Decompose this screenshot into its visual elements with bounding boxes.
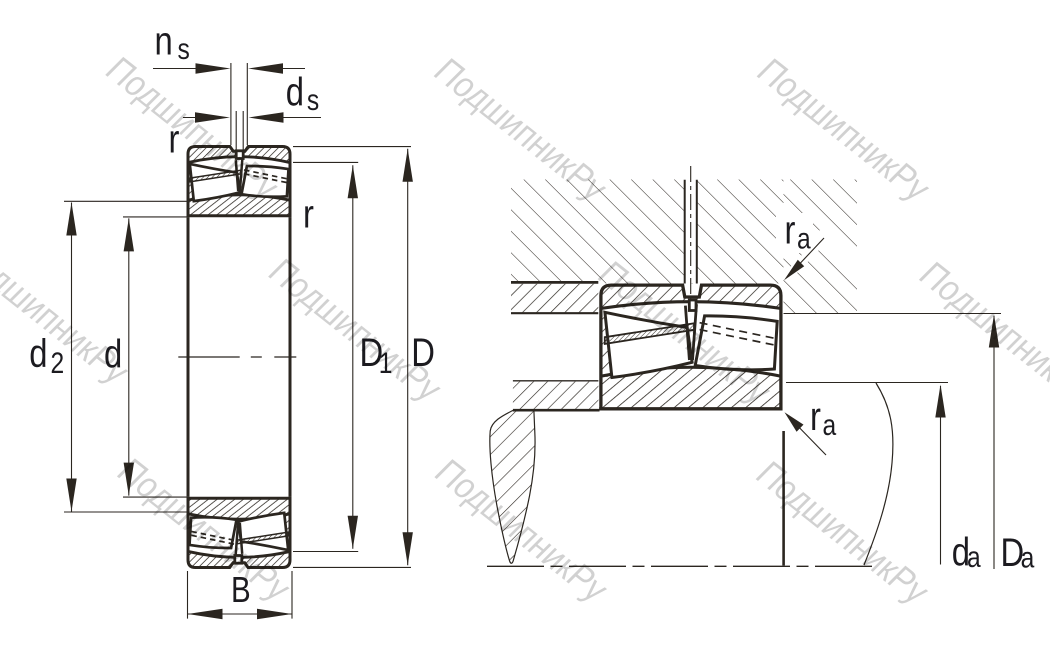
svg-text:r: r bbox=[810, 394, 821, 439]
svg-text:s: s bbox=[177, 32, 189, 66]
svg-text:n: n bbox=[155, 18, 173, 63]
svg-text:a: a bbox=[967, 540, 981, 574]
svg-text:a: a bbox=[1021, 540, 1035, 574]
svg-text:r: r bbox=[303, 191, 314, 236]
svg-text:s: s bbox=[307, 83, 319, 117]
svg-text:d: d bbox=[286, 69, 304, 114]
svg-text:r: r bbox=[785, 207, 796, 252]
svg-text:a: a bbox=[797, 221, 811, 255]
svg-text:a: a bbox=[822, 408, 836, 442]
